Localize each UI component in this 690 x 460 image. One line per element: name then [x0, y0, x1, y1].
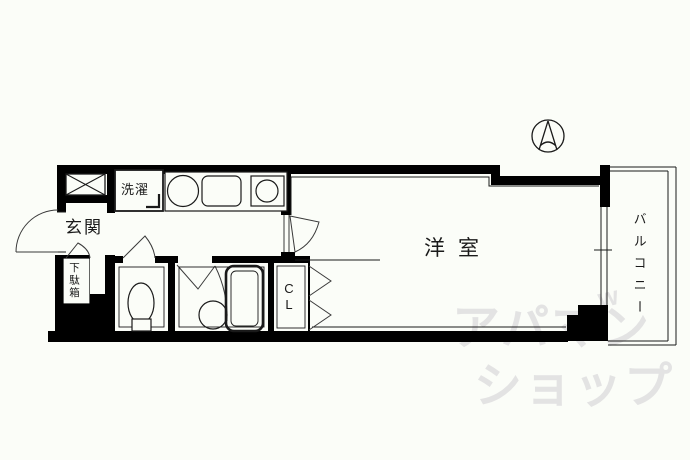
wall-top-right-step	[491, 165, 610, 185]
label-entrance: 玄関	[65, 219, 103, 237]
bath-door-gap	[178, 255, 212, 264]
wall-entrance-right	[107, 172, 115, 213]
wall-step-block	[567, 305, 608, 341]
toilet-tank	[132, 319, 151, 331]
wall-right-pillar	[600, 165, 610, 207]
label-western-room: 洋室	[424, 238, 492, 260]
compass-circle	[532, 120, 564, 152]
entrance-door-arc	[16, 210, 58, 252]
toilet-door-gap	[123, 255, 155, 264]
compass-north-icon	[532, 120, 564, 152]
label-closet-l: L	[282, 298, 296, 312]
wall-bottom	[48, 331, 568, 342]
wall-below-shaft	[60, 195, 107, 203]
toilet-door-swing	[123, 236, 155, 258]
hall-notch	[90, 255, 105, 294]
floorplan-image: アパマン ショップ w	[0, 0, 690, 460]
label-balcony: バルコニー	[632, 212, 646, 322]
counter-outline	[165, 172, 287, 211]
toilet-bowl	[128, 283, 154, 323]
bath-room-floor	[175, 263, 268, 331]
label-shoe-cabinet: 下駄箱	[68, 262, 79, 300]
room-door-swing	[290, 216, 319, 252]
fixtures	[66, 120, 564, 331]
closet-bifold-top	[309, 266, 331, 296]
shaft-cross-box	[66, 174, 105, 195]
compass-arrow	[539, 121, 557, 150]
label-closet-c: C	[282, 282, 296, 296]
floorplan-drawing	[0, 0, 690, 460]
closet-bifold-bottom	[309, 300, 331, 330]
kitchen-counter	[165, 172, 287, 211]
label-laundry: 洗濯	[121, 183, 149, 197]
